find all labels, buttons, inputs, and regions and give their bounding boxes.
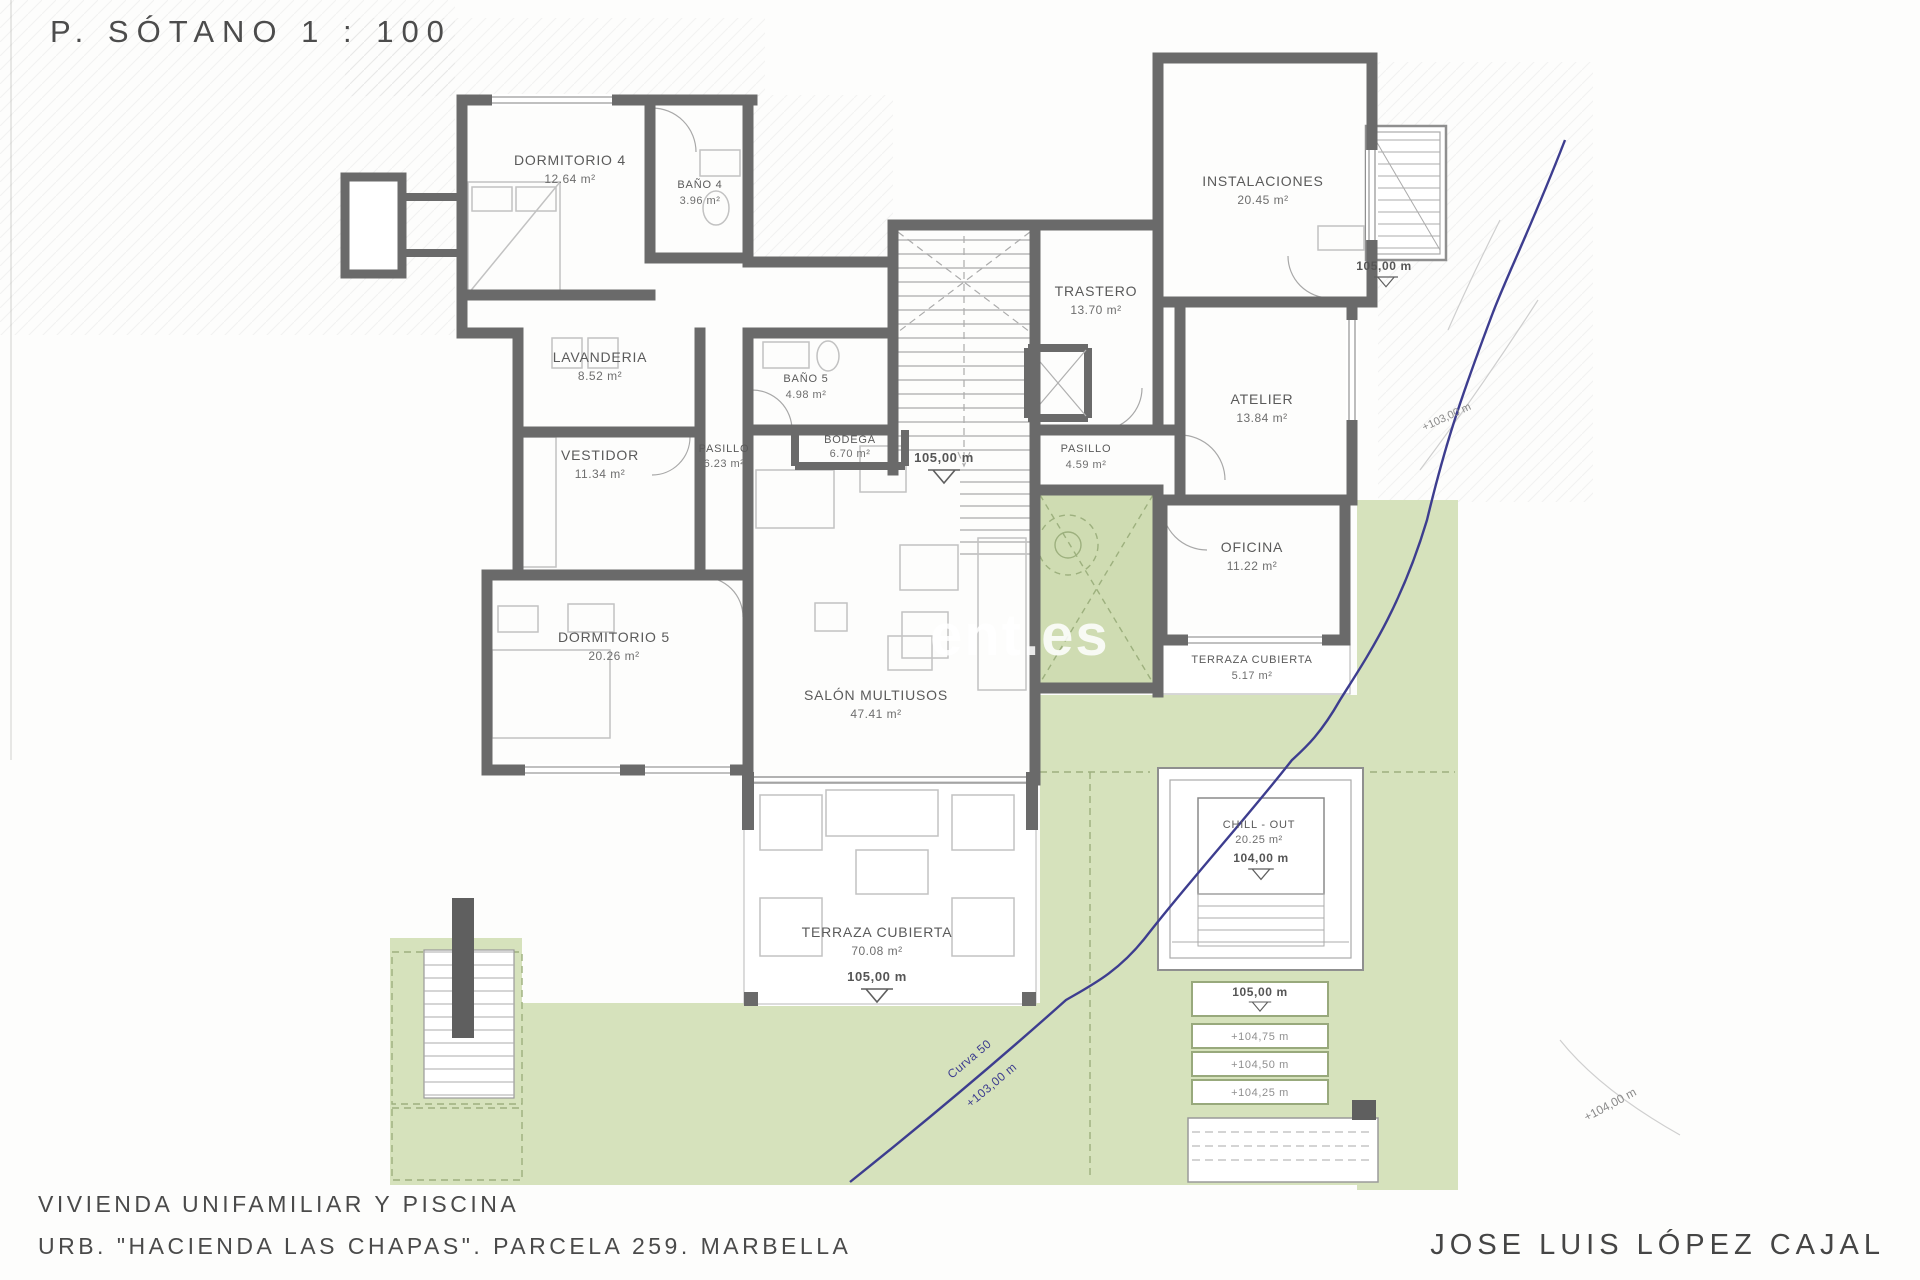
footer-line-2: URB. "HACIENDA LAS CHAPAS". PARCELA 259.… xyxy=(38,1233,851,1259)
level-chillout: 104,00 m xyxy=(1233,851,1289,865)
small-terrace-area xyxy=(1158,644,1350,694)
room-area-oficina: 11.22 m² xyxy=(1227,559,1277,573)
level-hall: 105,00 m xyxy=(914,450,974,465)
room-label-chillout: CHILL - OUT xyxy=(1223,819,1296,831)
room-area-pasillo-2: 4.59 m² xyxy=(1066,459,1107,471)
room-area-dormitorio-5: 20.26 m² xyxy=(588,649,639,663)
room-label-bano-4: BAÑO 4 xyxy=(677,178,722,191)
room-area-trastero: 13.70 m² xyxy=(1070,303,1121,317)
room-label-lavanderia: LAVANDERIA xyxy=(553,349,648,365)
garden-steps xyxy=(1192,982,1328,1104)
room-label-instalaciones: INSTALACIONES xyxy=(1202,173,1323,189)
watermark-text: ent.es xyxy=(930,603,1110,668)
room-label-bodega: BODEGA xyxy=(824,434,876,446)
floor-plan-canvas: DORMITORIO 4 12.64 m² BAÑO 4 3.96 m² LAV… xyxy=(0,0,1920,1280)
room-label-bano-5: BAÑO 5 xyxy=(783,372,828,385)
footer-line-1: VIVIENDA UNIFAMILIAR Y PISCINA xyxy=(38,1191,519,1217)
room-area-instalaciones: 20.45 m² xyxy=(1237,193,1288,207)
room-label-pasillo-2: PASILLO xyxy=(1061,443,1112,455)
room-area-bano-4: 3.96 m² xyxy=(680,195,721,207)
room-label-atelier: ATELIER xyxy=(1231,391,1294,407)
room-area-bano-5: 4.98 m² xyxy=(786,389,827,401)
architect-name: JOSE LUIS LÓPEZ CAJAL xyxy=(1430,1228,1885,1261)
room-label-vestidor: VESTIDOR xyxy=(561,447,639,463)
room-label-terraza-small: TERRAZA CUBIERTA xyxy=(1191,654,1312,666)
room-area-bodega: 6.70 m² xyxy=(830,448,871,460)
level-step-2: +104,50 m xyxy=(1231,1059,1289,1071)
level-stair-landing: 105,00 m xyxy=(1356,259,1412,273)
level-terrace: 105,00 m xyxy=(847,969,907,984)
room-area-chillout: 20.25 m² xyxy=(1235,834,1282,846)
level-steps-top: 105,00 m xyxy=(1232,985,1288,999)
room-label-oficina: OFICINA xyxy=(1221,539,1283,555)
room-label-salon-multiusos: SALÓN MULTIUSOS xyxy=(804,687,948,703)
floor-plan-page: DORMITORIO 4 12.64 m² BAÑO 4 3.96 m² LAV… xyxy=(0,0,1920,1280)
room-area-lavanderia: 8.52 m² xyxy=(578,369,622,383)
room-label-dormitorio-5: DORMITORIO 5 xyxy=(558,629,670,645)
room-label-pasillo-1: PASILLO xyxy=(699,443,750,455)
room-area-vestidor: 11.34 m² xyxy=(575,467,625,481)
room-label-terraza-main: TERRAZA CUBIERTA xyxy=(802,924,953,940)
level-step-3: +104,25 m xyxy=(1231,1087,1289,1099)
page-title: P. SÓTANO 1 : 100 xyxy=(50,14,452,49)
room-area-salon-multiusos: 47.41 m² xyxy=(850,707,901,721)
room-area-pasillo-1: 6.23 m² xyxy=(704,458,745,470)
room-label-trastero: TRASTERO xyxy=(1055,283,1138,299)
level-step-1: +104,75 m xyxy=(1231,1031,1289,1043)
room-area-terraza-small: 5.17 m² xyxy=(1232,670,1273,682)
room-label-dormitorio-4: DORMITORIO 4 xyxy=(514,152,626,168)
room-area-terraza-main: 70.08 m² xyxy=(851,944,902,958)
room-area-dormitorio-4: 12.64 m² xyxy=(544,172,595,186)
room-area-atelier: 13.84 m² xyxy=(1236,411,1287,425)
